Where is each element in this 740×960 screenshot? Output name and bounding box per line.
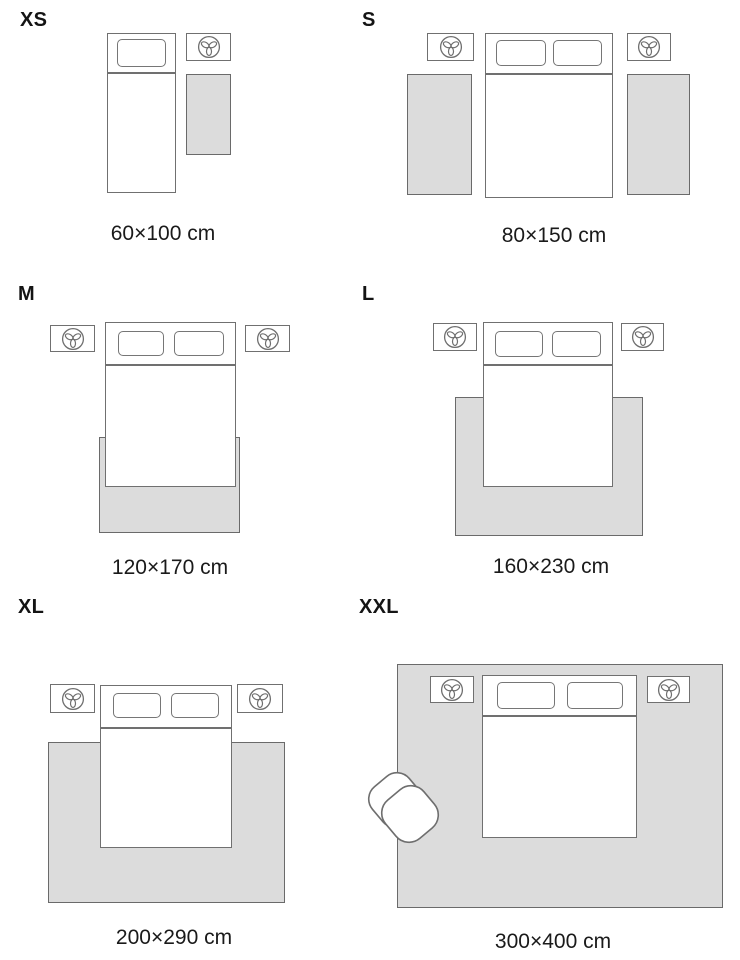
size-label-s: S [362,9,376,32]
pillow [495,331,543,357]
nightstand [245,325,290,352]
double-bed [483,322,613,487]
armchair-icon [348,752,458,862]
rug-s-right [627,74,690,195]
rug-s-left [407,74,472,195]
rug-xs [186,74,231,155]
pillow [113,693,161,718]
size-caption-s: 80×150 cm [444,224,664,248]
size-caption-xs: 60×100 cm [53,222,273,246]
nightstand [621,323,664,351]
nightstand [430,676,474,703]
nightstand [186,33,231,61]
plant-icon [256,327,280,351]
size-caption-xxl: 300×400 cm [443,930,663,954]
size-label-l: L [362,283,375,306]
size-label-xxl: XXL [359,596,399,619]
pillow [496,40,546,66]
double-bed [100,685,232,848]
plant-icon [248,687,272,711]
nightstand [433,323,477,351]
bed-headboard-line [482,715,637,717]
pillow [118,331,164,356]
pillow [567,682,623,709]
bed-headboard-line [485,73,613,75]
double-bed [482,675,637,838]
size-caption-m: 120×170 cm [60,556,280,580]
pillow [174,331,224,356]
size-label-m: M [18,283,35,306]
bed-headboard-line [105,364,236,366]
plant-icon [61,327,85,351]
nightstand [50,325,95,352]
double-bed [485,33,613,198]
double-bed [105,322,236,487]
single-bed [107,33,176,193]
pillow [497,682,555,709]
rug-size-guide: XS 60×100 cm S 80×150 cm M [0,0,740,960]
plant-icon [439,35,463,59]
pillow [171,693,219,718]
plant-icon [631,325,655,349]
bed-headboard-line [107,72,176,74]
size-label-xs: XS [20,9,47,32]
plant-icon [443,325,467,349]
nightstand [237,684,283,713]
nightstand [427,33,474,61]
nightstand [50,684,95,713]
bed-headboard-line [483,364,613,366]
nightstand [627,33,671,61]
pillow [553,40,602,66]
pillow [552,331,601,357]
bed-headboard-line [100,727,232,729]
pillow [117,39,166,67]
plant-icon [61,687,85,711]
size-caption-xl: 200×290 cm [64,926,284,950]
size-caption-l: 160×230 cm [441,555,661,579]
nightstand [647,676,690,703]
plant-icon [440,678,464,702]
plant-icon [197,35,221,59]
plant-icon [657,678,681,702]
plant-icon [637,35,661,59]
size-label-xl: XL [18,596,44,619]
